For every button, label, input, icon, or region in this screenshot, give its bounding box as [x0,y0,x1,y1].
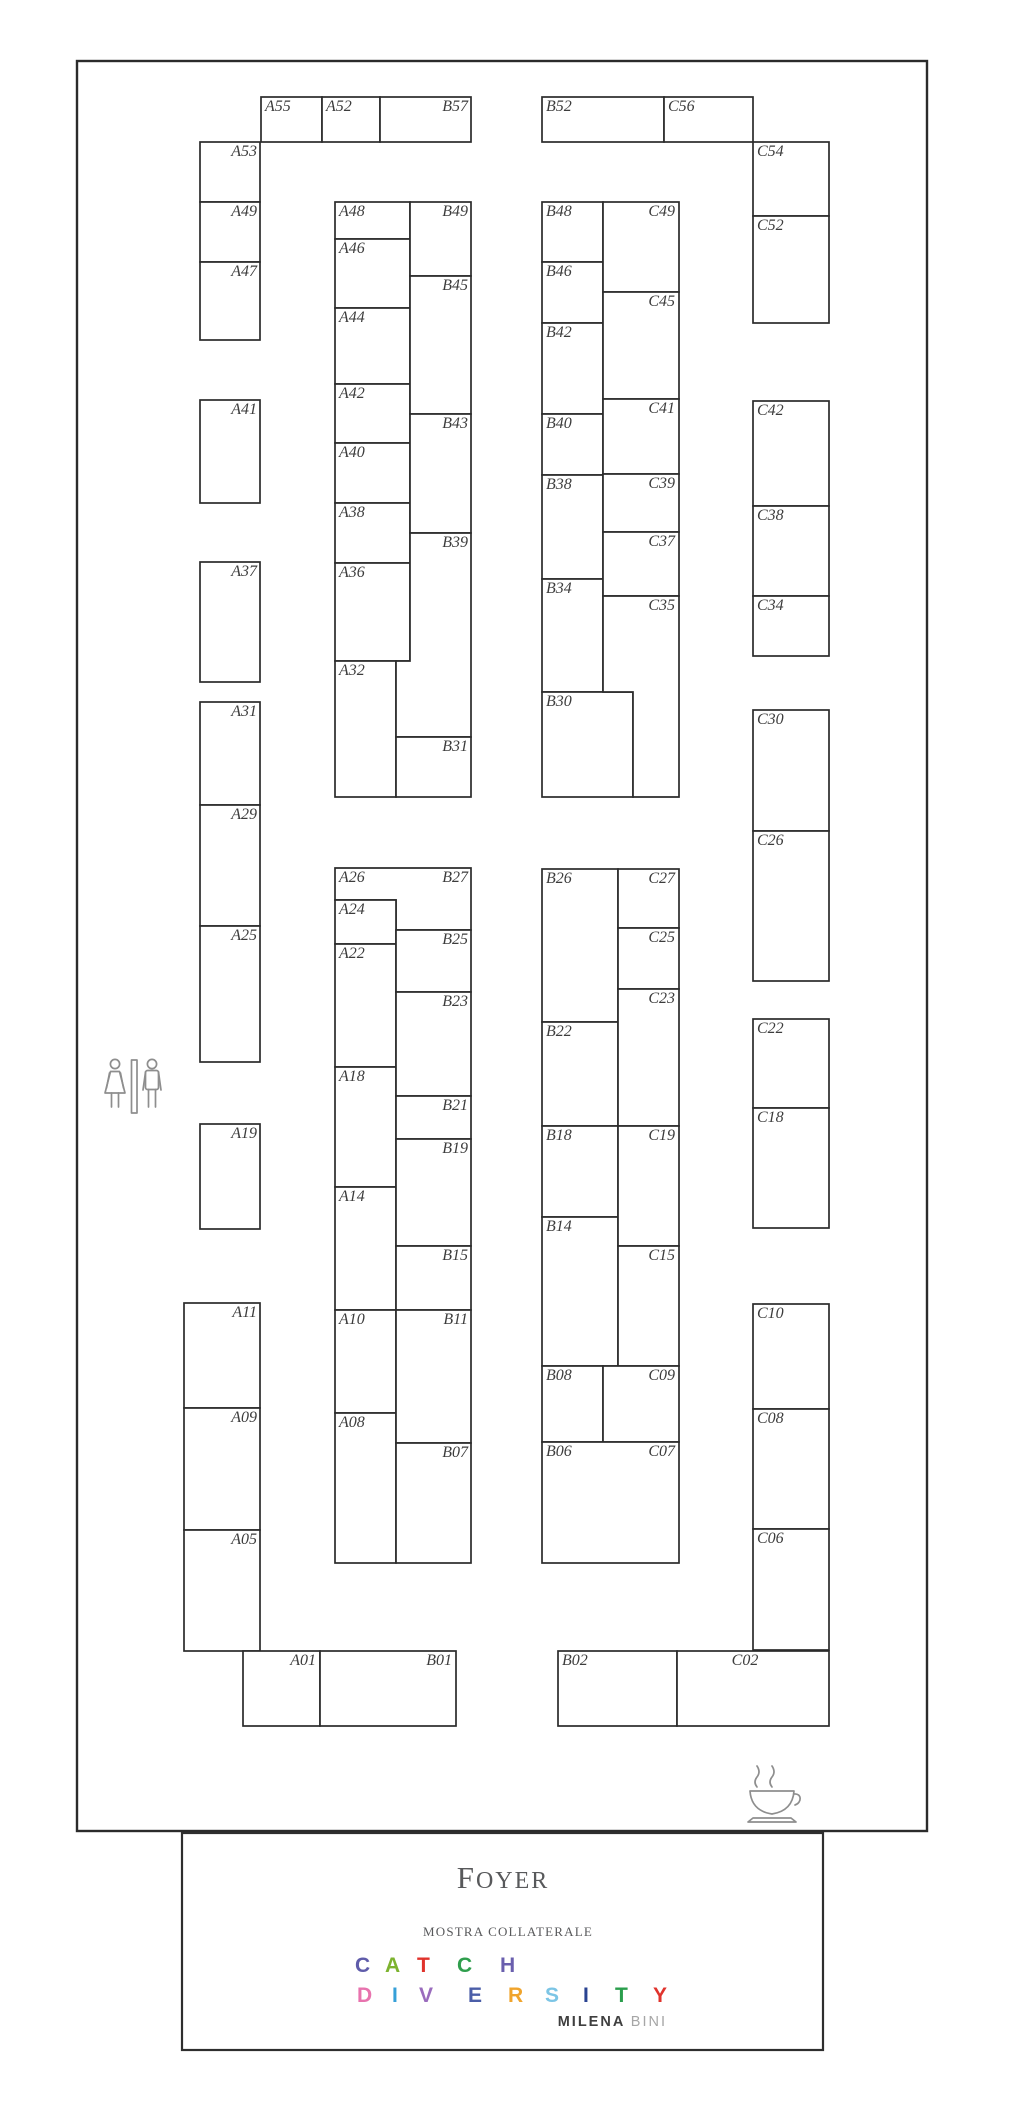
booth-label-B48: B48 [546,203,572,220]
foyer-title: FOYER [457,1860,550,1895]
booth-B11 [396,1310,471,1443]
booth-label-C18: C18 [757,1109,784,1126]
booth-label-A52: A52 [325,98,352,115]
booth-B07 [396,1443,471,1563]
booth-B14 [542,1217,618,1366]
booth-label-A37: A37 [230,563,258,580]
booth-label-A09: A09 [230,1409,257,1426]
booth-B06-C07 [542,1442,679,1563]
booth-label-A08: A08 [338,1414,365,1431]
booth-B26 [542,869,618,1022]
booth-label-B30: B30 [546,693,572,710]
booth-label-C37: C37 [648,533,676,550]
booth-label-C42: C42 [757,402,784,419]
booth-label-C07: C07 [648,1443,676,1460]
booth-label-B23: B23 [442,993,468,1010]
booth-label-B45: B45 [442,277,468,294]
booth-label-B22: B22 [546,1023,572,1040]
booth-A05 [184,1530,260,1651]
booth-label-B06: B06 [546,1443,572,1460]
booth-label-A47: A47 [230,263,258,280]
coffee-cup-icon [748,1766,800,1822]
foyer-room-outline [182,1833,823,2050]
booth-label-B43: B43 [442,415,468,432]
diversity-letter-V: V [419,1984,433,2007]
booth-label-A44: A44 [338,309,365,326]
restroom-man-legs [149,1090,156,1108]
booth-label-B02: B02 [562,1652,588,1669]
booth-label-C09: C09 [648,1367,675,1384]
booth-label-A05: A05 [230,1531,257,1548]
booth-label-A22: A22 [338,945,365,962]
diversity-letter-D: D [357,1984,372,2007]
booth-A25 [200,926,260,1062]
booth-label-C27: C27 [648,870,676,887]
booth-label-C22: C22 [757,1020,784,1037]
booth-label-A49: A49 [230,203,257,220]
booth-label-A42: A42 [338,385,365,402]
coffee-cup-body [750,1791,794,1814]
booth-label-A14: A14 [338,1188,365,1205]
booth-B45 [410,276,471,414]
catch-letter-A: A [385,1954,400,1977]
exhibition-floor-plan-page: A55A52B57B52C56A53A49A47A41A37A31A29A25A… [0,0,1024,2127]
booth-label-C06: C06 [757,1530,784,1547]
booth-label-A19: A19 [230,1125,257,1142]
booth-label-B08: B08 [546,1367,572,1384]
booth-label-C52: C52 [757,217,784,234]
booth-label-B18: B18 [546,1127,572,1144]
booth-label-B26: B26 [546,870,572,887]
booth-A18 [335,1067,396,1187]
booth-A14 [335,1187,396,1310]
brand-milena-bini: MILENA BINI [558,2014,667,2030]
coffee-steam-right [770,1766,774,1787]
booth-label-A29: A29 [230,806,257,823]
booth-label-A26: A26 [338,869,365,886]
booth-label-C41: C41 [648,400,675,417]
floor-plan-canvas: A55A52B57B52C56A53A49A47A41A37A31A29A25A… [0,0,1024,2127]
booth-label-A11: A11 [231,1304,257,1321]
booth-C26 [753,831,829,981]
booth-label-B39: B39 [442,534,468,551]
restroom-man-head [147,1059,156,1068]
booth-C19 [618,1126,679,1246]
diversity-letter-S: S [545,1984,559,2007]
booth-label-C49: C49 [648,203,675,220]
booth-C23 [618,989,679,1126]
diversity-letter-I: I [392,1984,398,2007]
booth-label-A41: A41 [230,401,257,418]
booth-label-A55: A55 [264,98,291,115]
diversity-letter-I: I [583,1984,589,2007]
restroom-woman-legs [112,1093,119,1107]
coffee-cup-handle [794,1794,800,1805]
booth-label-A31: A31 [230,703,257,720]
booth-label-C39: C39 [648,475,675,492]
booth-label-B07: B07 [442,1444,469,1461]
coffee-steam-left [755,1766,759,1787]
booth-label-A10: A10 [338,1311,365,1328]
booth-label-A40: A40 [338,444,365,461]
booth-label-B52: B52 [546,98,572,115]
booth-label-C35: C35 [648,597,675,614]
booth-label-C02: C02 [732,1652,759,1669]
booth-label-A01: A01 [289,1652,316,1669]
booth-label-C54: C54 [757,143,784,160]
booth-label-A53: A53 [230,143,257,160]
catch-letter-C: C [355,1954,370,1977]
booth-A37 [200,562,260,682]
catch-letter-T: T [417,1954,430,1977]
booth-A09 [184,1408,260,1530]
booth-label-B11: B11 [443,1311,468,1328]
booth-label-C25: C25 [648,929,675,946]
booth-label-B34: B34 [546,580,572,597]
foyer-subtitle: MOSTRA COLLATERALE [423,1924,593,1939]
booth-label-A32: A32 [338,662,365,679]
diversity-letter-T: T [615,1984,628,2007]
booth-A08 [335,1413,396,1563]
booth-label-A36: A36 [338,564,365,581]
diversity-letter-E: E [468,1984,482,2007]
booth-label-C30: C30 [757,711,784,728]
booth-label-C19: C19 [648,1127,675,1144]
booth-A29 [200,805,260,926]
booth-C06 [753,1529,829,1650]
booth-C30 [753,710,829,831]
booth-C18 [753,1108,829,1228]
booth-label-B31: B31 [442,738,468,755]
booth-label-B49: B49 [442,203,468,220]
booth-label-C15: C15 [648,1247,675,1264]
booth-label-C26: C26 [757,832,784,849]
restroom-divider [132,1060,138,1113]
booth-label-A46: A46 [338,240,365,257]
booth-A22 [335,944,396,1067]
booth-label-A25: A25 [230,927,257,944]
diversity-letter-Y: Y [653,1984,667,2007]
restroom-man-torso [146,1071,159,1090]
coffee-saucer [748,1818,796,1822]
booth-label-B14: B14 [546,1218,572,1235]
booth-label-A24: A24 [338,901,365,918]
catch-letter-C: C [457,1954,472,1977]
booth-label-B15: B15 [442,1247,468,1264]
booth-label-C56: C56 [668,98,695,115]
booth-label-B42: B42 [546,324,572,341]
restroom-icon [105,1059,161,1113]
booth-label-C38: C38 [757,507,784,524]
restroom-woman-head [110,1059,119,1068]
booth-label-C08: C08 [757,1410,784,1427]
booth-label-B25: B25 [442,931,468,948]
booth-label-B21: B21 [442,1097,468,1114]
booth-label-B01: B01 [426,1652,452,1669]
catch-letter-H: H [500,1954,515,1977]
diversity-letter-R: R [508,1984,523,2007]
booth-C15 [618,1246,679,1366]
booth-label-C10: C10 [757,1305,784,1322]
booth-label-B57: B57 [442,98,469,115]
booth-label-C23: C23 [648,990,675,1007]
booth-label-B27: B27 [442,869,469,886]
booth-label-A18: A18 [338,1068,365,1085]
booth-A32 [335,661,396,797]
booth-label-A38: A38 [338,504,365,521]
booth-label-C34: C34 [757,597,784,614]
booth-label-B46: B46 [546,263,572,280]
booth-label-A48: A48 [338,203,365,220]
booth-label-C45: C45 [648,293,675,310]
booth-label-B19: B19 [442,1140,468,1157]
booth-label-B40: B40 [546,415,572,432]
booth-C08 [753,1409,829,1529]
booth-label-B38: B38 [546,476,572,493]
